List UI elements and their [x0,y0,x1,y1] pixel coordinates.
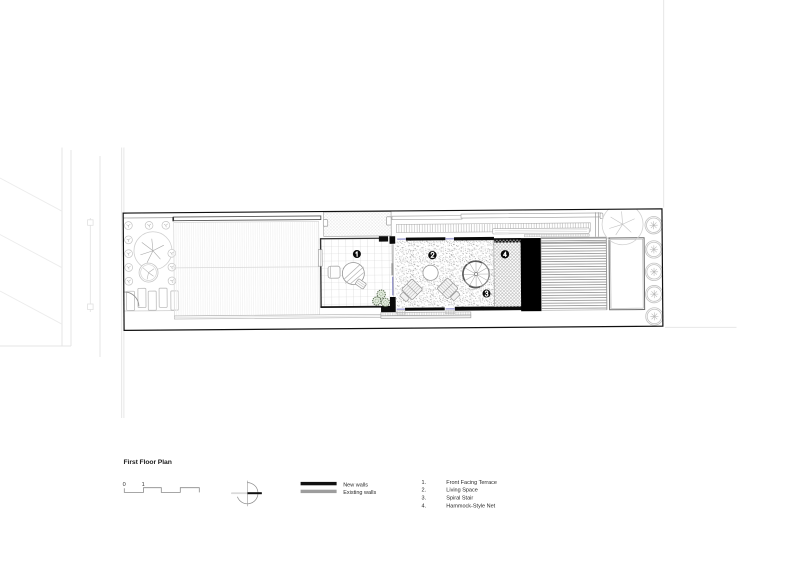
svg-text:New walls: New walls [343,482,368,488]
svg-text:Existing walls: Existing walls [343,490,376,496]
svg-text:Front Facing Terrace: Front Facing Terrace [446,480,497,486]
svg-text:1: 1 [142,482,145,488]
svg-text:Living Space: Living Space [446,488,478,494]
svg-text:3.: 3. [422,496,427,502]
svg-text:2.: 2. [422,488,427,494]
svg-text:0: 0 [123,482,126,488]
svg-text:First Floor Plan: First Floor Plan [124,459,172,466]
svg-text:1.: 1. [422,480,427,486]
svg-text:Hammock-Style Net: Hammock-Style Net [446,504,495,510]
svg-text:4.: 4. [422,504,427,510]
svg-text:Spiral Stair: Spiral Stair [446,496,473,502]
